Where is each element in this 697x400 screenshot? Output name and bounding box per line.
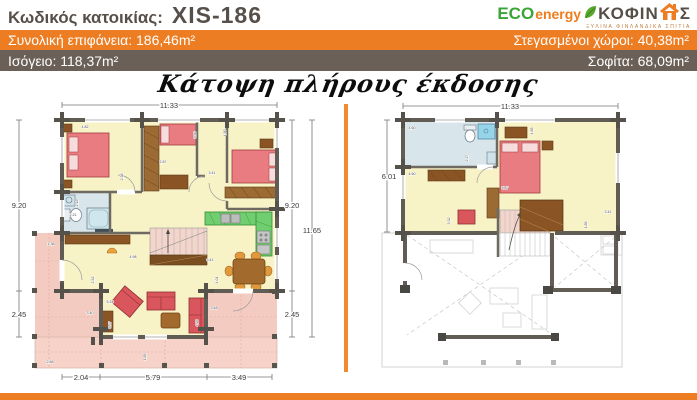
svg-text:3.49: 3.49: [232, 373, 247, 382]
wardrobe-icon: [144, 126, 159, 191]
plan-divider: [344, 104, 348, 372]
svg-text:2.52: 2.52: [91, 277, 95, 284]
svg-text:4.85: 4.85: [530, 128, 534, 135]
house-icon: [660, 3, 679, 24]
shower-icon: [478, 124, 495, 139]
svg-text:2.68: 2.68: [47, 360, 54, 364]
svg-text:5.79: 5.79: [146, 373, 161, 382]
svg-text:11.33: 11.33: [160, 101, 178, 110]
svg-text:2.87: 2.87: [160, 160, 167, 164]
toilet-icon: [465, 130, 475, 142]
svg-text:4.60: 4.60: [409, 126, 416, 130]
svg-text:5.24: 5.24: [107, 300, 114, 304]
brochure-page: Κωδικός κατοικίας: XIS-186 ECO energy ΚΟ…: [0, 0, 697, 400]
header: Κωδικός κατοικίας: XIS-186 ECO energy ΚΟ…: [0, 0, 697, 30]
svg-text:9.20: 9.20: [285, 201, 300, 210]
kitchen-sink-icon: [221, 214, 230, 223]
svg-text:4.82: 4.82: [82, 125, 89, 129]
svg-text:3.40: 3.40: [87, 311, 94, 315]
svg-text:2.45: 2.45: [12, 310, 27, 319]
attic-floor-plan: 11.33 6.01 4.604.602.274.855.873.323.411…: [365, 95, 697, 395]
ground-floor-plan: 11.33 9.20 2.45 9.20 2.45 11.65 2.04 5.7…: [5, 95, 340, 395]
dining-table-icon: [233, 259, 265, 284]
logo-energy-text: energy: [535, 7, 581, 21]
svg-text:1.38: 1.38: [48, 242, 55, 246]
svg-text:4.50: 4.50: [223, 130, 227, 137]
svg-text:3.48: 3.48: [211, 306, 218, 310]
svg-text:5.37: 5.37: [108, 322, 112, 329]
svg-text:4.98: 4.98: [130, 255, 137, 259]
svg-text:11.65: 11.65: [303, 226, 321, 235]
svg-text:4.01: 4.01: [215, 277, 219, 284]
svg-text:2.38: 2.38: [120, 174, 124, 181]
svg-text:2.27: 2.27: [465, 155, 469, 162]
svg-text:2.19: 2.19: [75, 200, 79, 207]
covered-area: Στεγασμένοι χώροι: 40,38m²: [514, 32, 690, 48]
floors-bar: Ισόγειο: 118,37m² Σοφίτα: 68,09m²: [0, 50, 697, 71]
total-area: Συνολική επιφάνεια: 186,46m²: [8, 32, 195, 48]
svg-text:2.21: 2.21: [70, 213, 77, 217]
house-code-label: Κωδικός κατοικίας:: [8, 8, 163, 28]
svg-text:4.28: 4.28: [195, 320, 199, 327]
ground-floor-area: Ισόγειο: 118,37m²: [8, 53, 118, 69]
svg-text:2.04: 2.04: [74, 373, 89, 382]
storage-block: [520, 200, 563, 231]
svg-text:2.45: 2.45: [285, 310, 300, 319]
stairs: [150, 228, 207, 265]
svg-text:3.36: 3.36: [193, 132, 197, 139]
logo-brand-right: Σ: [680, 5, 691, 22]
attic-area: Σοφίτα: 68,09m²: [588, 53, 689, 69]
svg-text:3.32: 3.32: [447, 218, 451, 225]
svg-text:1.85: 1.85: [584, 222, 588, 229]
bottom-accent-stripe: [0, 393, 697, 400]
svg-text:3.41: 3.41: [207, 258, 214, 262]
logo-eco-text: ECO: [497, 5, 534, 22]
svg-text:4.60: 4.60: [409, 172, 416, 176]
stove-icon: [257, 231, 270, 243]
svg-text:3.41: 3.41: [605, 210, 612, 214]
house-code-block: Κωδικός κατοικίας: XIS-186: [8, 2, 262, 29]
desk-icon: [428, 170, 465, 181]
svg-text:1.85: 1.85: [143, 354, 147, 361]
company-logo: ECO energy ΚΟΦΙΝ Σ ΞΥΛΙΝΑ ΦΙΝΛΑΝΔΙΚΑ ΣΠΙ…: [497, 3, 691, 30]
leaf-icon: [584, 5, 597, 23]
svg-text:9.20: 9.20: [12, 201, 27, 210]
coffee-table-icon: [161, 313, 180, 328]
svg-text:5.87: 5.87: [502, 186, 509, 190]
svg-text:11.33: 11.33: [501, 102, 519, 111]
sink-icon: [63, 195, 75, 206]
plan-title: Κάτοψη πλήρους έκδοσης: [0, 69, 697, 98]
sink-icon: [487, 152, 497, 164]
logo-brand-left: ΚΟΦΙΝ: [598, 5, 659, 22]
house-code-value: XIS-186: [172, 2, 262, 29]
armchair-icon: [458, 210, 475, 224]
svg-text:6.01: 6.01: [382, 172, 397, 181]
svg-text:3.41: 3.41: [209, 171, 216, 175]
area-bar: Συνολική επιφάνεια: 186,46m² Στεγασμένοι…: [0, 30, 697, 50]
